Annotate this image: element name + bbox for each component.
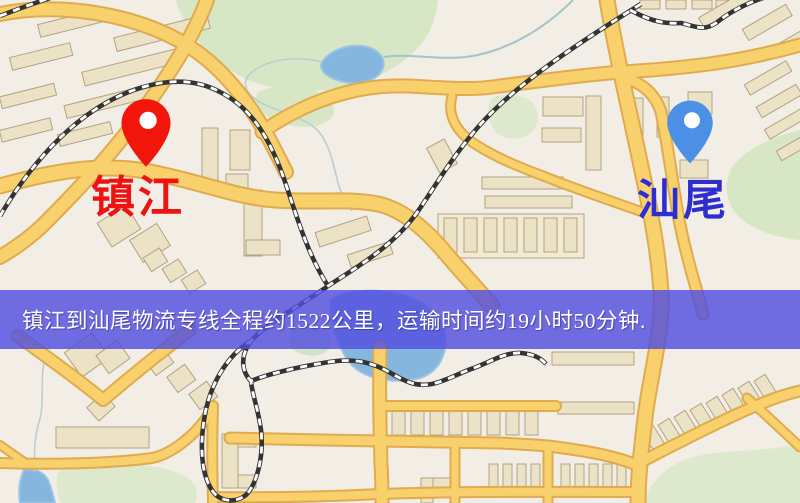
shanwei-label: 汕尾: [637, 180, 729, 223]
info-banner: 镇江到汕尾物流专线全程约1522公里，运输时间约19小时50分钟.: [0, 290, 800, 349]
zhenjiang-pin-icon: [118, 98, 174, 168]
banner-text: 镇江到汕尾物流专线全程约1522公里，运输时间约19小时50分钟.: [0, 304, 646, 335]
map-canvas: [0, 0, 800, 503]
zhenjiang-label: 镇江: [91, 176, 185, 220]
map-screenshot: 镇江 汕尾 镇江到汕尾物流专线全程约1522公里，运输时间约19小时50分钟.: [0, 0, 800, 503]
shanwei-pin-icon: [664, 98, 716, 166]
